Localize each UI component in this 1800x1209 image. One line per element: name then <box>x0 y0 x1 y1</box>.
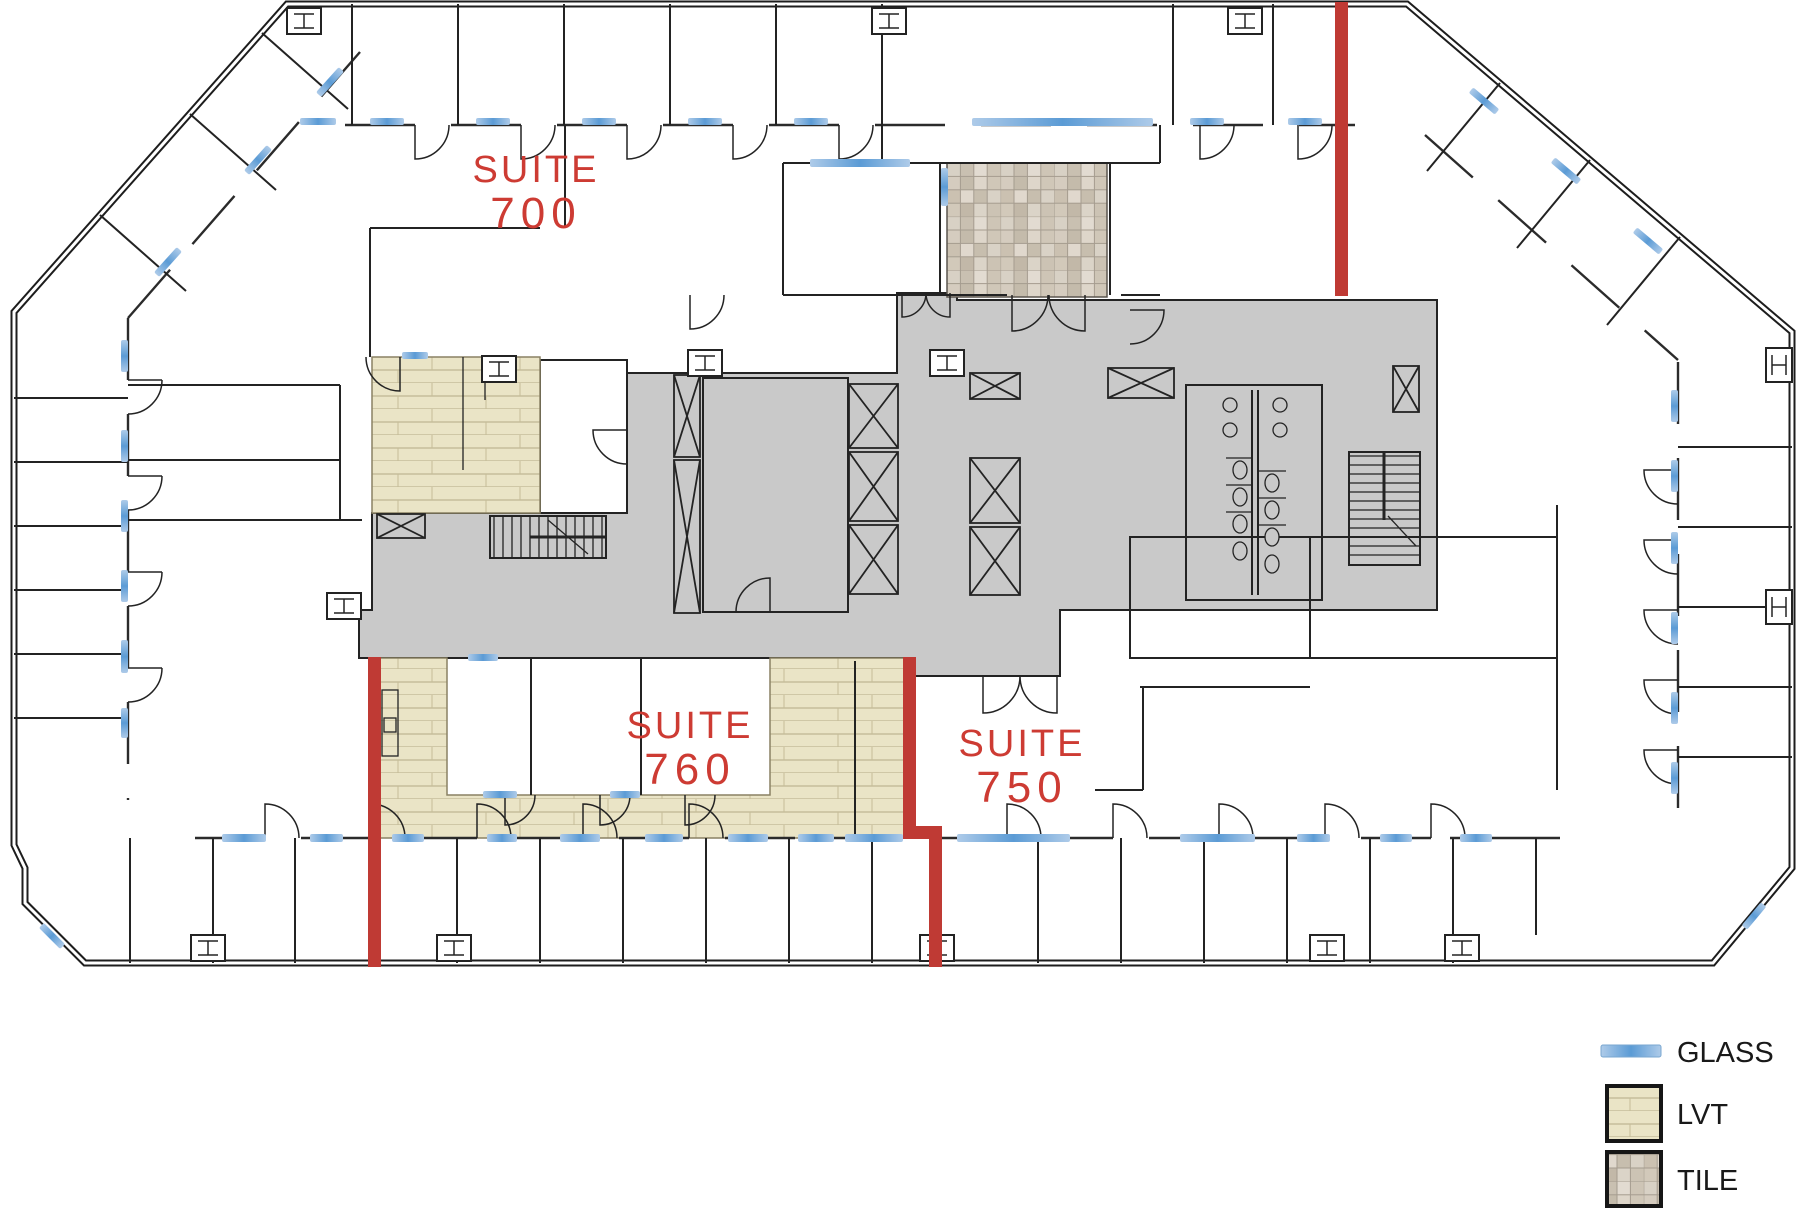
legend-glass-label: GLASS <box>1677 1037 1774 1069</box>
floorplan-drawing: SUITE 700 SUITE 760 SUITE 750 GLASS LVT … <box>0 0 1800 1209</box>
legend-lvt-label: LVT <box>1677 1099 1728 1131</box>
suite-750-label: SUITE <box>959 723 1086 765</box>
legend-tile-swatch <box>1607 1152 1661 1206</box>
legend: GLASS LVT TILE <box>1601 1037 1774 1206</box>
legend-glass-swatch <box>1601 1045 1661 1057</box>
demising-line-west <box>368 657 381 967</box>
suite-760-number: 760 <box>644 745 735 794</box>
legend-tile-label: TILE <box>1677 1165 1738 1197</box>
suite-750-number: 750 <box>976 763 1067 812</box>
suite-700-number: 700 <box>490 189 581 238</box>
demising-line-north <box>1335 2 1348 296</box>
legend-lvt-swatch <box>1607 1086 1661 1141</box>
suite-700-label: SUITE <box>473 149 600 191</box>
floorplan-page: SUITE 700 SUITE 760 SUITE 750 GLASS LVT … <box>0 0 1800 1209</box>
suite-760-label: SUITE <box>627 705 754 747</box>
tile-floor-area <box>947 163 1107 297</box>
